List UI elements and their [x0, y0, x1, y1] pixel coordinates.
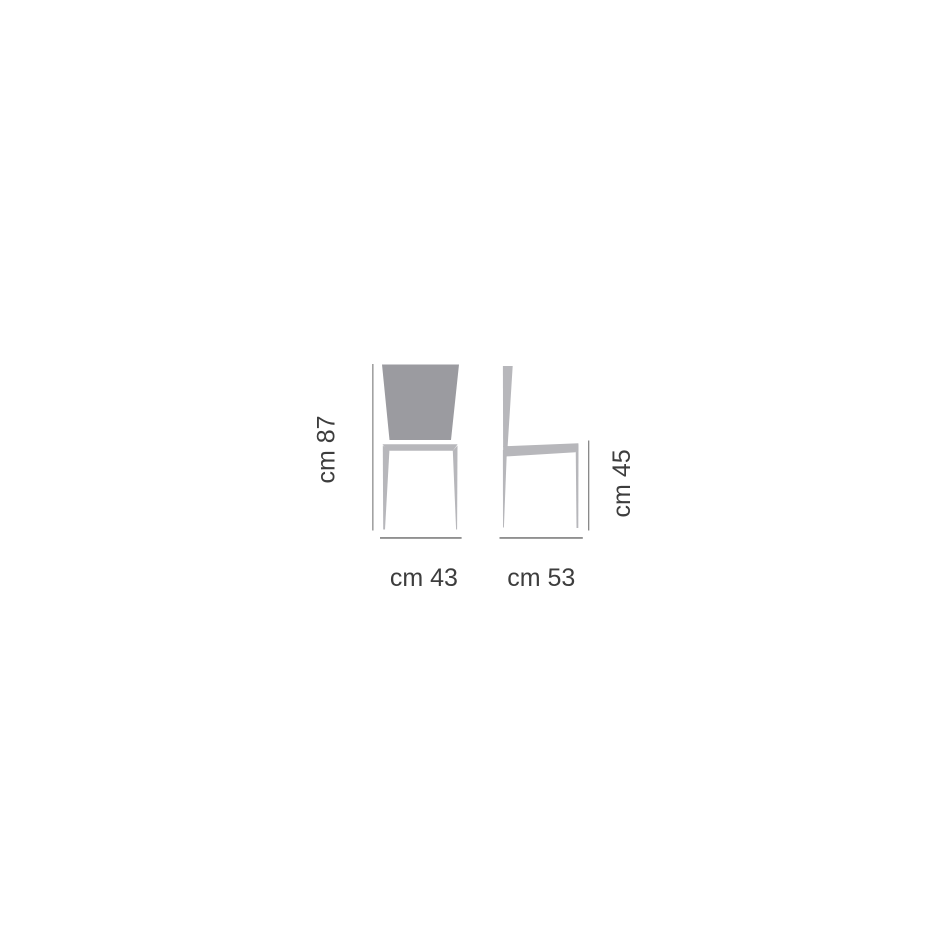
svg-text:cm 43: cm 43 — [390, 564, 458, 592]
svg-text:cm 53: cm 53 — [507, 564, 575, 592]
svg-text:cm 87: cm 87 — [312, 415, 340, 483]
svg-text:cm 45: cm 45 — [608, 449, 636, 517]
